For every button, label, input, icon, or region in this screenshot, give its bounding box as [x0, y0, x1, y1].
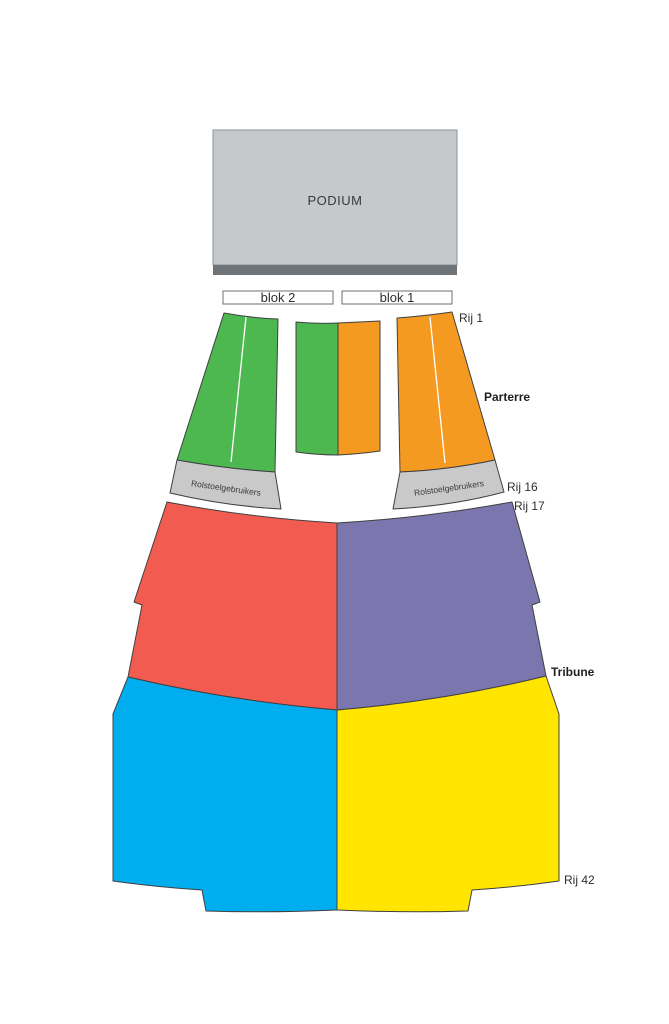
row-42-label: Rij 42 — [564, 873, 595, 887]
tribune-blue-section[interactable] — [113, 677, 337, 912]
parterre-label: Parterre — [484, 390, 530, 404]
row-17-label: Rij 17 — [514, 499, 545, 513]
blok2-label: blok 2 — [261, 290, 296, 305]
parterre-blok1-center-section[interactable] — [338, 321, 380, 455]
tribune-yellow-section[interactable] — [337, 676, 559, 912]
blok1-label: blok 1 — [380, 290, 415, 305]
podium: PODIUM — [213, 130, 457, 275]
tribune-red-section[interactable] — [128, 502, 337, 710]
venue-seatmap: PODIUM blok 2 blok 1 Rolstoelgebruikers … — [0, 0, 669, 1024]
parterre-sections: Rolstoelgebruikers Rolstoelgebruikers — [170, 312, 504, 509]
parterre-blok2-outer-section[interactable] — [177, 313, 278, 472]
parterre-blok1-outer-section[interactable] — [397, 312, 495, 472]
tribune-label: Tribune — [551, 665, 595, 679]
row-1-label: Rij 1 — [459, 311, 483, 325]
block-legend: blok 2 blok 1 — [223, 290, 452, 305]
tribune-purple-section[interactable] — [337, 502, 546, 710]
podium-label: PODIUM — [308, 193, 363, 208]
tribune-sections — [113, 502, 559, 912]
parterre-blok2-center-section[interactable] — [296, 322, 338, 455]
podium-front-edge — [213, 265, 457, 275]
row-16-label: Rij 16 — [507, 480, 538, 494]
